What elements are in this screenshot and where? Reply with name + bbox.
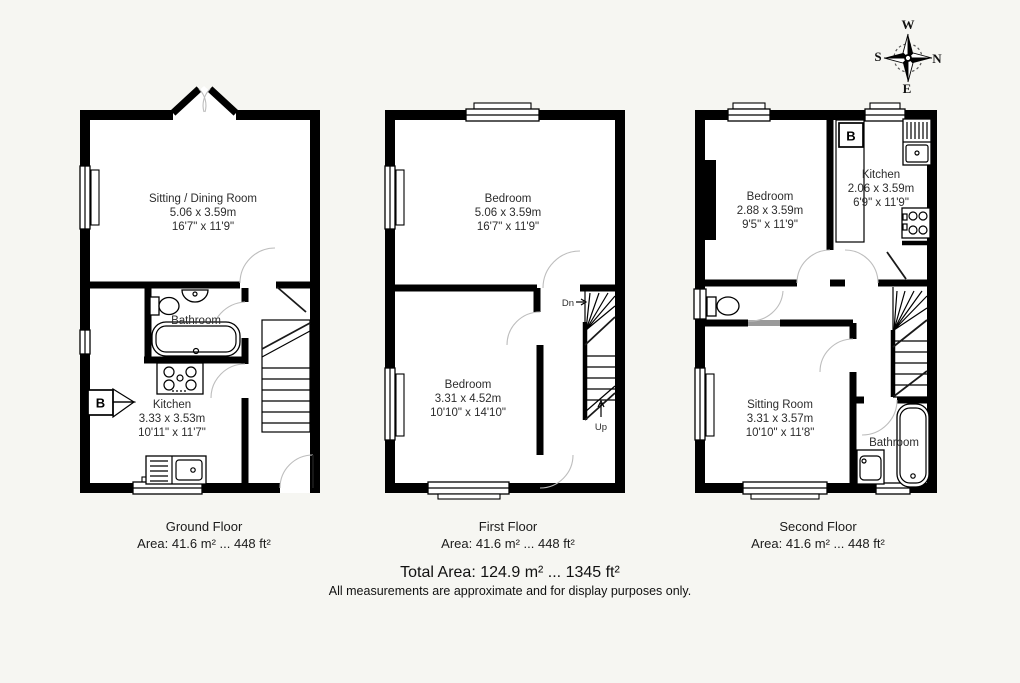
room-size-imperial: 10'10" x 14'10" xyxy=(430,407,506,419)
compass-north-label: N xyxy=(932,51,942,66)
compass-south-label: S xyxy=(874,49,881,64)
kitchen-sink-icon xyxy=(903,119,931,165)
total-area-text: Total Area: 124.9 m² ... 1345 ft² xyxy=(400,564,620,581)
room-label: Bathroom xyxy=(171,315,221,327)
room-size-imperial: 10'10" x 11'8" xyxy=(746,427,815,439)
floor-caption: Ground Floor xyxy=(166,519,243,534)
compass-rose-icon: W N E S xyxy=(874,17,942,96)
boiler-label: B xyxy=(846,129,855,144)
room-size-metric: 3.31 x 4.52m xyxy=(435,393,501,405)
second-floor-plan: B xyxy=(694,103,937,499)
floor-area: Area: 41.6 m² ... 448 ft² xyxy=(137,536,271,551)
room-size-metric: 3.33 x 3.53m xyxy=(139,413,205,425)
room-label: Kitchen xyxy=(153,399,191,411)
kitchen-sink-icon xyxy=(146,456,206,484)
chimney-breast xyxy=(705,160,716,240)
room-label: Bedroom xyxy=(445,379,492,391)
room-size-imperial: 9'5" x 11'9" xyxy=(742,219,798,231)
toilet-icon xyxy=(707,297,739,316)
boiler-label: B xyxy=(96,396,105,411)
bathroom-sink-icon xyxy=(857,450,884,484)
hob-icon xyxy=(157,363,203,394)
disclaimer-text: All measurements are approximate and for… xyxy=(329,584,691,598)
room-size-metric: 2.88 x 3.59m xyxy=(737,205,803,217)
floor-area: Area: 41.6 m² ... 448 ft² xyxy=(441,536,575,551)
room-label: Bedroom xyxy=(485,193,532,205)
room-size-imperial: 6'9" x 11'9" xyxy=(853,197,909,209)
room-size-metric: 5.06 x 3.59m xyxy=(475,207,541,219)
floorplan-image: W N E S xyxy=(0,0,1020,683)
compass-east-label: E xyxy=(903,81,912,96)
room-label: Sitting / Dining Room xyxy=(149,193,257,205)
room-label: Kitchen xyxy=(862,169,900,181)
floorplan-page: W N E S xyxy=(0,0,1020,683)
floor-caption: Second Floor xyxy=(779,519,857,534)
compass-west-label: W xyxy=(902,17,915,32)
bathtub-icon xyxy=(152,322,240,356)
room-size-imperial: 16'7" x 11'9" xyxy=(172,221,234,233)
room-size-imperial: 16'7" x 11'9" xyxy=(477,221,539,233)
stairs-up-label: Up xyxy=(595,422,607,433)
stairs-down-label: Dn xyxy=(562,298,574,309)
ground-floor-plan: B Sitting / Dining Room 5.06 x 3.59m 16'… xyxy=(80,86,320,494)
toilet-icon xyxy=(150,297,179,315)
room-label: Bedroom xyxy=(747,191,794,203)
room-size-metric: 3.31 x 3.57m xyxy=(747,413,813,425)
floor-caption: First Floor xyxy=(479,519,538,534)
hob-icon xyxy=(902,208,930,238)
room-label: Bathroom xyxy=(869,437,919,449)
first-floor-plan: Bedroom 5.06 x 3.59m 16'7" x 11'9" Bedro… xyxy=(385,103,625,499)
room-size-metric: 5.06 x 3.59m xyxy=(170,207,236,219)
floor-area: Area: 41.6 m² ... 448 ft² xyxy=(751,536,885,551)
floor-captions: Ground Floor Area: 41.6 m² ... 448 ft² F… xyxy=(137,519,885,551)
room-label: Sitting Room xyxy=(747,399,813,411)
footer: Total Area: 124.9 m² ... 1345 ft² All me… xyxy=(329,564,691,598)
room-size-imperial: 10'11" x 11'7" xyxy=(138,427,206,439)
room-size-metric: 2.06 x 3.59m xyxy=(848,183,914,195)
